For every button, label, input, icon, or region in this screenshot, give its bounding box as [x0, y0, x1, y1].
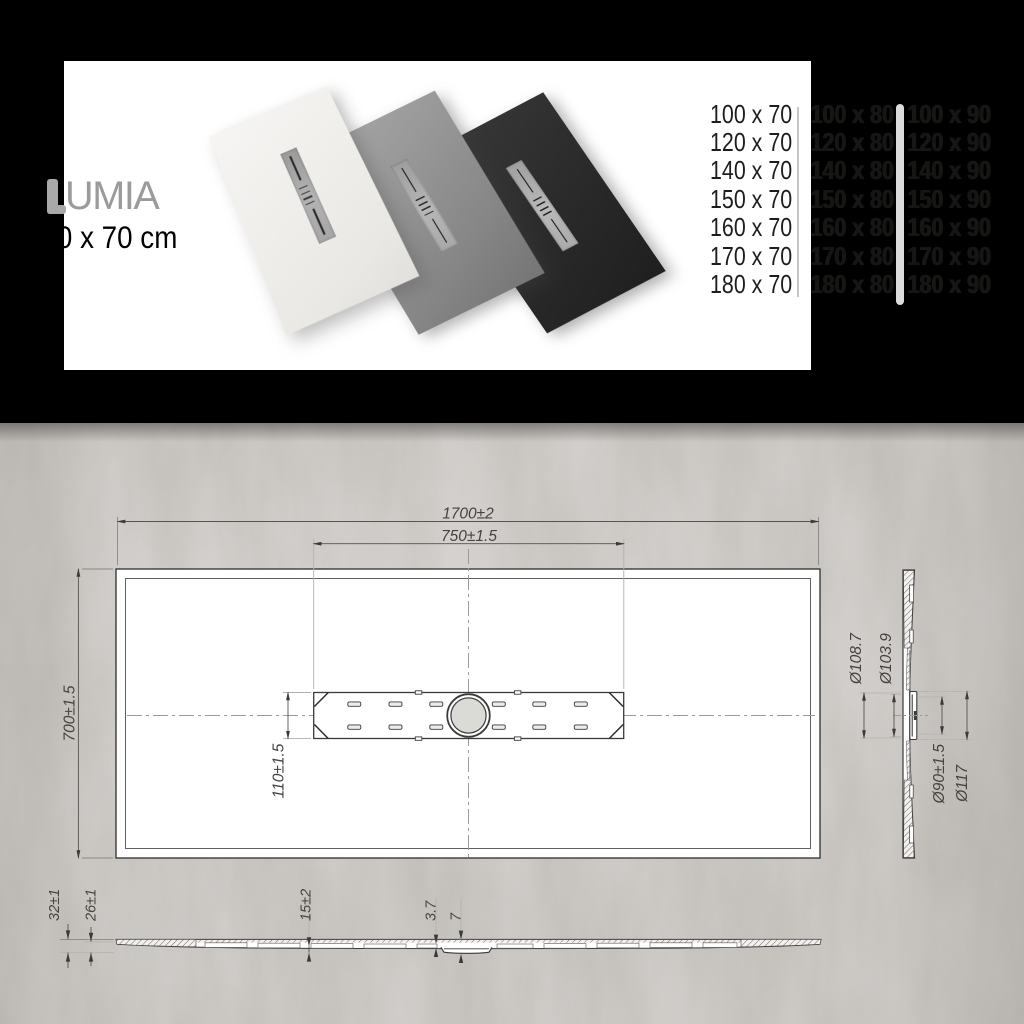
- svg-text:7: 7: [449, 912, 465, 921]
- svg-text:Ø90±1.5: Ø90±1.5: [931, 744, 948, 805]
- svg-text:32±1: 32±1: [47, 889, 63, 921]
- svg-text:Ø117: Ø117: [954, 764, 971, 803]
- svg-text:3.7: 3.7: [424, 900, 440, 921]
- svg-text:110±1.5: 110±1.5: [271, 743, 288, 798]
- svg-text:1700±2: 1700±2: [442, 506, 494, 523]
- svg-text:Ø103.9: Ø103.9: [878, 633, 895, 685]
- svg-text:750±1.5: 750±1.5: [441, 528, 497, 545]
- svg-text:26±1: 26±1: [84, 889, 100, 922]
- svg-text:700±1.5: 700±1.5: [62, 685, 79, 741]
- svg-text:Ø108.7: Ø108.7: [848, 632, 865, 685]
- svg-text:15±2: 15±2: [299, 889, 315, 921]
